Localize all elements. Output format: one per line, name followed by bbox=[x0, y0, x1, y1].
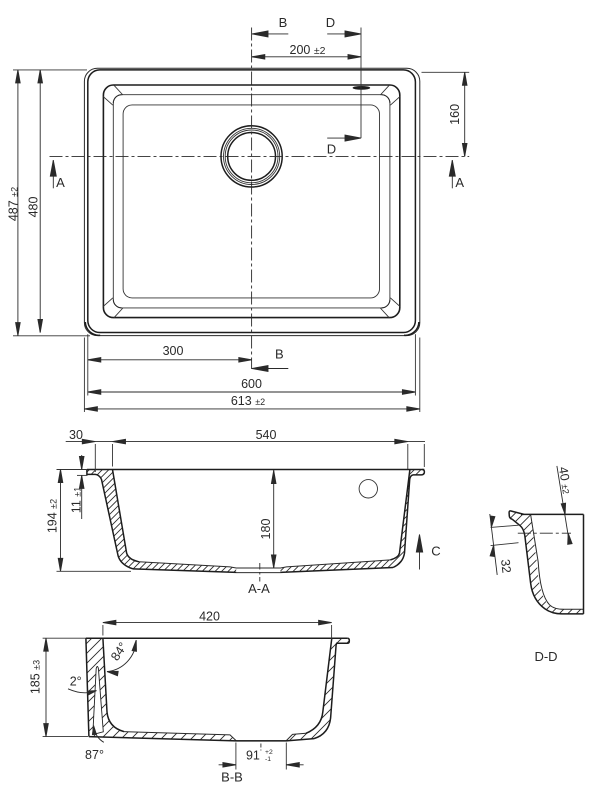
svg-text:480: 480 bbox=[27, 197, 41, 218]
svg-text:487 ±2: 487 ±2 bbox=[7, 187, 21, 221]
svg-text:11 ±1: 11 ±1 bbox=[70, 487, 84, 513]
svg-text:A-A: A-A bbox=[248, 581, 270, 596]
svg-text:540: 540 bbox=[256, 428, 277, 442]
svg-text:185 ±3: 185 ±3 bbox=[29, 660, 43, 694]
svg-text:B: B bbox=[275, 346, 284, 361]
svg-text:D: D bbox=[326, 15, 335, 30]
svg-text:-1: -1 bbox=[265, 756, 271, 763]
svg-text:613 ±2: 613 ±2 bbox=[231, 394, 265, 408]
svg-text:+2: +2 bbox=[265, 749, 273, 756]
svg-text:A: A bbox=[56, 175, 65, 190]
svg-text:32: 32 bbox=[498, 558, 514, 574]
svg-text:A: A bbox=[455, 175, 464, 190]
svg-text:2°: 2° bbox=[70, 675, 82, 689]
svg-text:C: C bbox=[431, 544, 440, 559]
svg-text:91: 91 bbox=[246, 749, 260, 763]
svg-text:D: D bbox=[327, 142, 336, 157]
svg-text:87°: 87° bbox=[85, 748, 104, 762]
svg-text:B-B: B-B bbox=[221, 769, 243, 784]
svg-text:D-D: D-D bbox=[534, 649, 557, 664]
svg-text:600: 600 bbox=[241, 377, 262, 391]
svg-text:B: B bbox=[279, 15, 288, 30]
svg-text:300: 300 bbox=[163, 344, 184, 358]
svg-text:30: 30 bbox=[69, 428, 83, 442]
svg-text:160: 160 bbox=[448, 104, 462, 125]
svg-text:194 ±2: 194 ±2 bbox=[46, 499, 60, 533]
svg-text:420: 420 bbox=[199, 610, 220, 624]
svg-text:180: 180 bbox=[259, 519, 273, 540]
svg-text:200 ±2: 200 ±2 bbox=[290, 43, 326, 57]
